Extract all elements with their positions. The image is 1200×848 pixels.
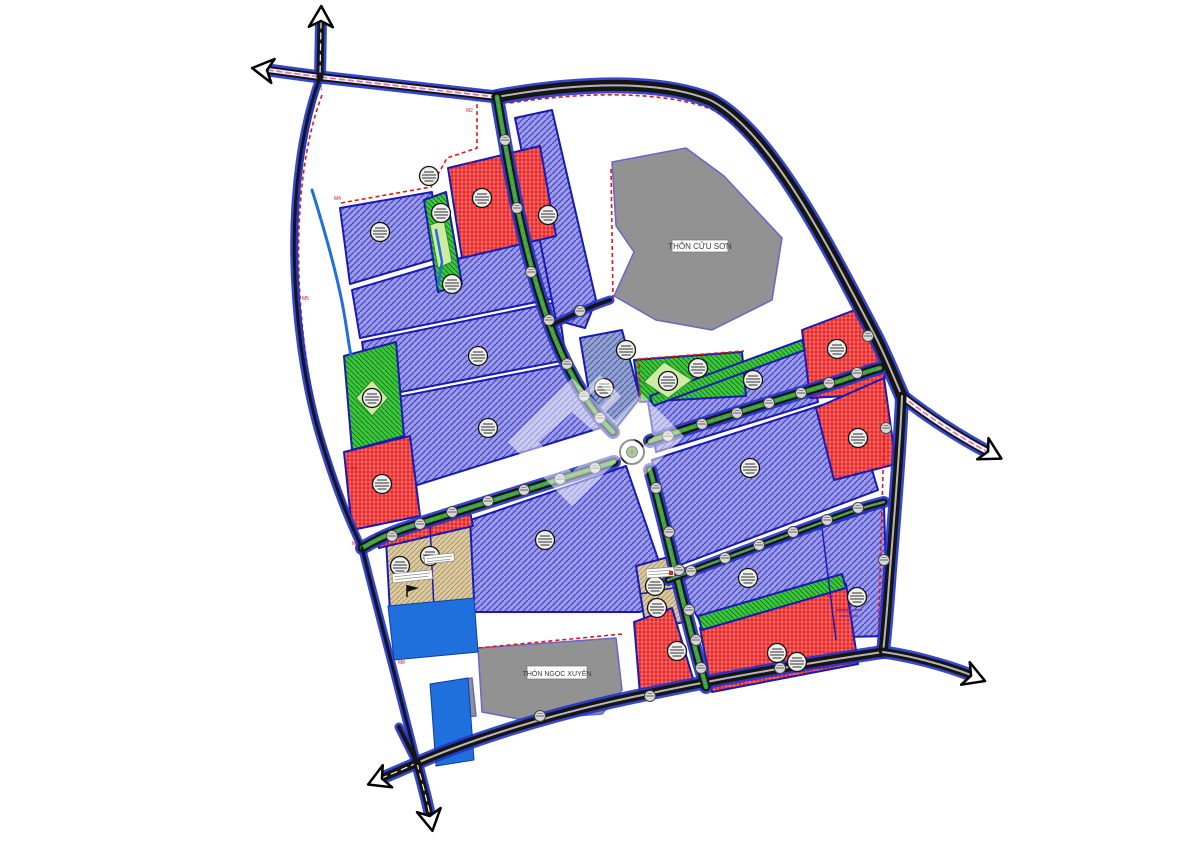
parcel-stamp [849, 429, 868, 448]
parcel-stamp [788, 653, 807, 672]
parcel-stamp [432, 204, 451, 223]
stamp-circle [849, 429, 868, 448]
junction-node [822, 515, 833, 526]
junction-node [674, 565, 685, 576]
parcel-stamp [648, 599, 667, 618]
parcel-stamp [371, 223, 390, 242]
junction-node [696, 663, 707, 674]
stamp-circle [479, 419, 498, 438]
stamp-circle [443, 275, 462, 294]
village-label-top: THÔN CỬU SƠN [668, 242, 732, 251]
parcel-stamp [539, 206, 558, 225]
junction-node [788, 527, 799, 538]
junction-node [853, 503, 864, 514]
parcel-stamp [443, 275, 462, 294]
stamp-circle [848, 588, 867, 607]
junction-node [686, 566, 697, 577]
stamp-circle [469, 347, 488, 366]
junction-node [562, 359, 573, 370]
junction-node [664, 527, 675, 538]
junction-node [575, 306, 586, 317]
pond [388, 598, 478, 660]
parcel-stamp [739, 569, 758, 588]
boundary-marker-label: M2 [466, 108, 473, 114]
parcel-stamp [689, 359, 708, 378]
junction-node [796, 388, 807, 399]
parcel-stamp [741, 459, 760, 478]
stamp-circle [739, 569, 758, 588]
stamp-circle [536, 531, 555, 550]
junction-node [824, 378, 835, 389]
zoning-map-canvas[interactable]: M1M2M3M4M5M6M7M8THÔN CỬU SƠNTHÔN NGỌC XU… [0, 0, 1200, 848]
boundary-marker-label: M6 [350, 466, 357, 472]
junction-node [483, 496, 494, 507]
stamp-circle [741, 459, 760, 478]
junction-node [387, 531, 398, 542]
junction-node [519, 485, 530, 496]
red-marker-dot [669, 571, 673, 575]
parcel-stamp [768, 644, 787, 663]
junction-node [764, 398, 775, 409]
parcel-stamp [828, 340, 847, 359]
junction-node [863, 331, 874, 342]
parcel-stamp [420, 167, 439, 186]
stamp-circle [473, 189, 492, 208]
stamp-circle [371, 223, 390, 242]
junction-node [512, 203, 523, 214]
parcel-stamp [668, 642, 687, 661]
stamp-circle [648, 599, 667, 618]
junction-node [691, 635, 702, 646]
stamp-circle [689, 359, 708, 378]
junction-node [775, 663, 786, 674]
junction-node [535, 711, 546, 722]
boundary-marker-label: M8 [398, 660, 405, 666]
junction-node [645, 691, 656, 702]
stamp-circle [539, 206, 558, 225]
junction-node [500, 135, 511, 146]
parcel-stamp [536, 531, 555, 550]
stamp-circle [646, 577, 665, 596]
junction-node [720, 553, 731, 564]
junction-node [415, 519, 426, 530]
stamp-circle [668, 642, 687, 661]
junction-node [544, 315, 555, 326]
boundary-marker-label: M5 [302, 296, 309, 302]
stamp-circle [617, 341, 636, 360]
junction-node [651, 483, 662, 494]
stamp-circle [373, 475, 392, 494]
parcel-stamp [469, 347, 488, 366]
parcel-stamp [646, 577, 665, 596]
stamp-circle [744, 371, 763, 390]
parcel-stamp [473, 189, 492, 208]
junction-node [879, 555, 890, 566]
junction-node [526, 267, 537, 278]
stamp-circle [659, 372, 678, 391]
stamp-circle [788, 653, 807, 672]
parcel-stamp [848, 588, 867, 607]
parcel-stamp [744, 371, 763, 390]
parcel-stamp [659, 372, 678, 391]
stamp-circle [363, 389, 382, 408]
parcel-stamp [373, 475, 392, 494]
stamp-circle [828, 340, 847, 359]
map-viewport: M1M2M3M4M5M6M7M8THÔN CỬU SƠNTHÔN NGỌC XU… [0, 0, 1200, 848]
junction-node [684, 605, 695, 616]
stamp-circle [768, 644, 787, 663]
village-label-bottom: THÔN NGỌC XUYÊN [523, 669, 592, 678]
junction-node [697, 419, 708, 430]
boundary-marker-label: M4 [334, 196, 341, 202]
parcel-stamp [617, 341, 636, 360]
parcel-stamp [363, 389, 382, 408]
boundary-marker-label: M3 [468, 162, 475, 168]
junction-node [754, 540, 765, 551]
junction-node [881, 423, 892, 434]
stamp-circle [420, 167, 439, 186]
stamp-circle [432, 204, 451, 223]
junction-node [852, 368, 863, 379]
junction-node [447, 507, 458, 518]
junction-node [732, 408, 743, 419]
parcel-stamp [479, 419, 498, 438]
